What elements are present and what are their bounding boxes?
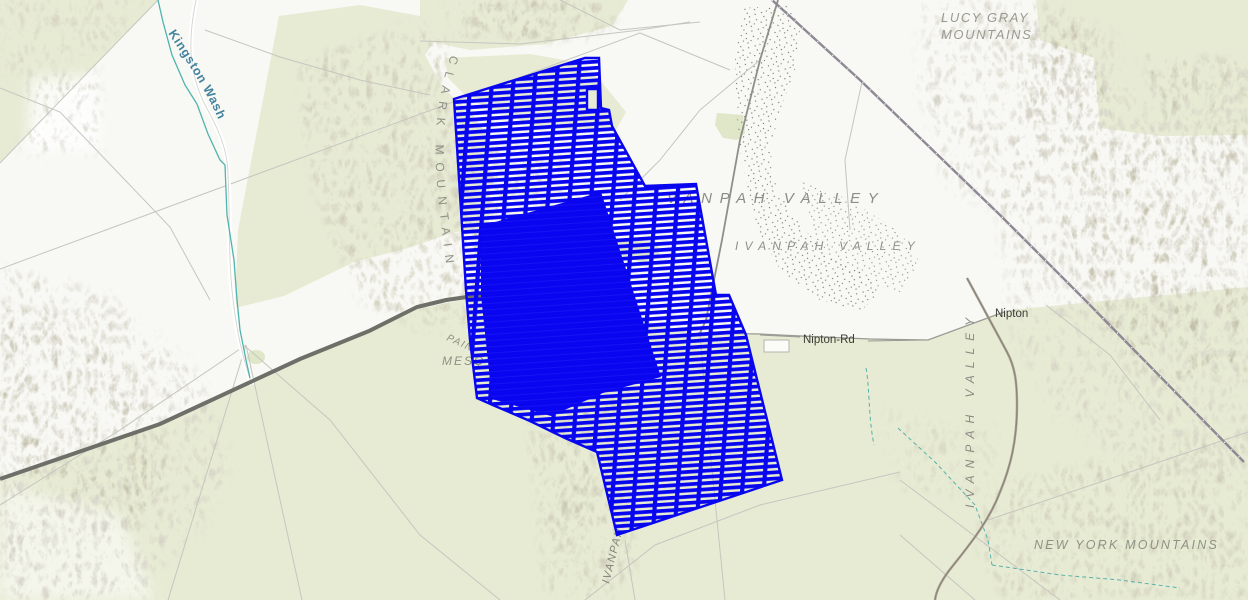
svg-text:IVANPAH VALLEY: IVANPAH VALLEY — [735, 239, 921, 253]
svg-text:LUCY GRAY: LUCY GRAY — [941, 10, 1029, 25]
svg-text:MOUNTAINS: MOUNTAINS — [941, 27, 1032, 42]
svg-text:Nipton-Rd: Nipton-Rd — [803, 334, 855, 346]
svg-text:NEW YORK MOUNTAINS: NEW YORK MOUNTAINS — [1034, 538, 1219, 552]
svg-text:Nipton: Nipton — [995, 308, 1028, 320]
svg-text:IVANPAH VALLEY: IVANPAH VALLEY — [963, 311, 977, 508]
